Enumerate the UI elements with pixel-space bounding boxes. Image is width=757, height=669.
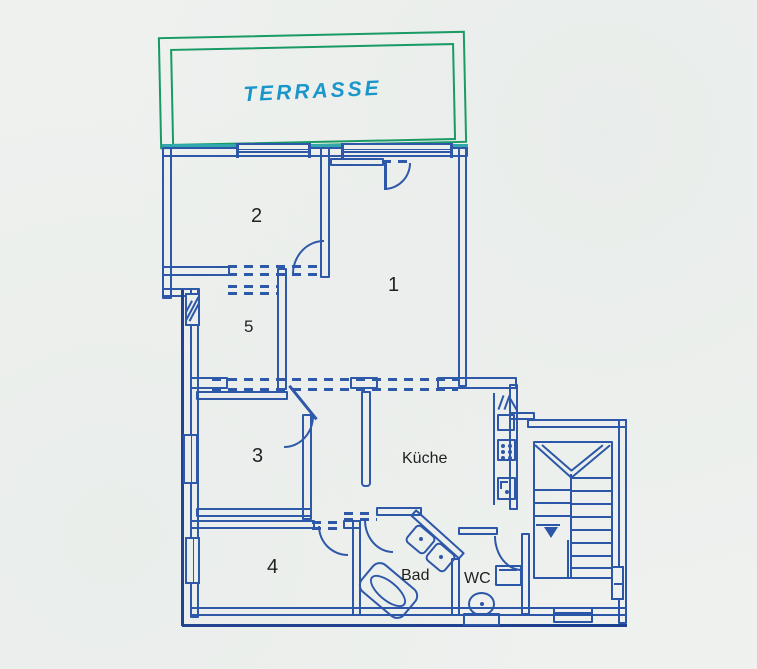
door-arc-bath-icon (364, 520, 393, 553)
stair-tread (535, 515, 570, 517)
stair-tread (572, 542, 611, 544)
stair-flight-edge (567, 540, 569, 578)
room-3-label: 3 (252, 445, 263, 468)
wall-bath-left (352, 520, 361, 616)
dashed-opening-room5 (228, 292, 278, 295)
wall-stub-kitchen-t (350, 377, 378, 389)
wall-kitchen-partition (361, 391, 371, 487)
wall-room1-top-inner (330, 158, 384, 166)
bath-label: Bad (401, 567, 429, 585)
wall-bath-right (451, 558, 460, 616)
wall-kitchen-top (437, 377, 517, 389)
floor-plan: TERRASSE (0, 0, 757, 669)
wall-room3-bottom (196, 508, 312, 517)
dashed-wall-hall (212, 378, 458, 381)
window-room1-icon (341, 143, 453, 153)
wall-stair-top (527, 419, 627, 428)
stair-tread (572, 516, 611, 518)
window-room5-icon (185, 293, 200, 326)
wall-room2-bottom (162, 266, 230, 276)
kitchen-sink-icon (497, 414, 515, 431)
wc-label: WC (464, 570, 491, 588)
door-arc-room4-icon (318, 526, 348, 556)
window-room2-icon (236, 143, 310, 153)
stair-tread (572, 477, 611, 479)
entrance-step-inner (555, 612, 591, 614)
stair-down-arrow-icon (544, 527, 558, 538)
stair-tread (535, 489, 570, 491)
wc-basin-inner (499, 569, 517, 571)
window-tick (308, 143, 311, 158)
stair-tread (572, 529, 611, 531)
window-tick (341, 143, 344, 158)
balcony-door-leaf (384, 163, 387, 190)
window-tick (450, 143, 453, 158)
dashed-opening-bath (344, 512, 377, 515)
stair-tread (572, 555, 611, 557)
staircase (533, 441, 613, 579)
balcony-door-arc-icon (384, 163, 411, 190)
stair-tread (536, 524, 560, 526)
stair-tread (572, 567, 611, 569)
window-room3-icon (183, 434, 198, 484)
room-2-label: 2 (251, 205, 262, 228)
room-1-label: 1 (388, 274, 399, 297)
wall-room4-top (190, 520, 315, 529)
dashed-opening-room5 (228, 285, 278, 288)
stove-icon (497, 439, 516, 461)
wall-room5-right (277, 268, 287, 390)
outer-edge-bottom (182, 624, 627, 627)
wall-room1-right (458, 147, 467, 387)
wall-wc-top (458, 527, 498, 535)
terrace: TERRASSE (154, 25, 472, 157)
window-room4-icon (185, 537, 200, 584)
room-5-label: 5 (244, 317, 253, 337)
dashed-opening-room4 (312, 521, 344, 524)
kitchen-counter-edge (493, 393, 495, 505)
wall-landing-left (521, 533, 530, 615)
room-4-label: 4 (267, 556, 278, 579)
wall-left-upper (162, 147, 172, 299)
stair-tread (572, 490, 611, 492)
stair-tread (535, 502, 570, 504)
wall-room3-top (196, 391, 288, 400)
stair-tread (572, 503, 611, 505)
kitchen-label: Küche (402, 450, 447, 468)
door-arc-room2-icon (292, 240, 324, 274)
entrance-step-icon (553, 607, 593, 623)
wall-stub-left (190, 377, 228, 389)
toilet-tank (463, 613, 500, 626)
window-tick (236, 143, 239, 158)
